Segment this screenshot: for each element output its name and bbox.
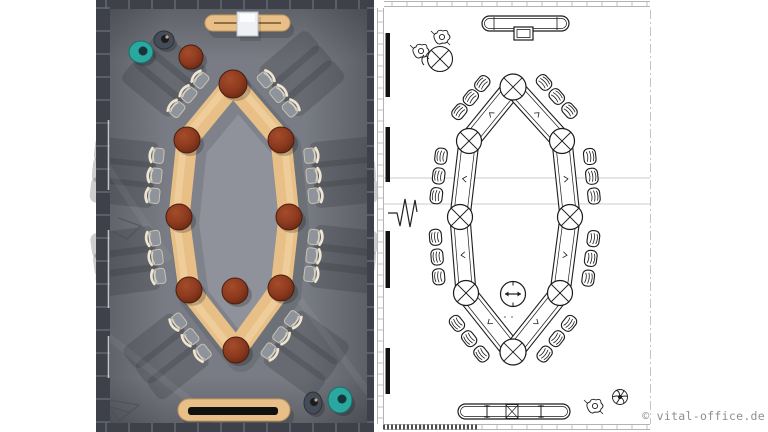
cad-person bbox=[584, 399, 603, 414]
cad-plan-view bbox=[378, 2, 651, 430]
cad-chair bbox=[587, 187, 601, 204]
cad-chair bbox=[547, 329, 566, 349]
cad-person bbox=[613, 390, 628, 405]
junction-table bbox=[268, 275, 294, 301]
cad-side-table bbox=[422, 47, 453, 72]
junction-table bbox=[223, 337, 249, 363]
junction-table bbox=[166, 204, 192, 230]
cad-chair bbox=[547, 87, 567, 107]
wall-right bbox=[367, 0, 374, 432]
cad-chair bbox=[459, 329, 478, 349]
reference-dot bbox=[511, 316, 513, 318]
cad-chair bbox=[581, 269, 595, 286]
cad-chair bbox=[583, 148, 597, 165]
cad-junction-table bbox=[454, 281, 479, 306]
cad-junction-table bbox=[500, 339, 526, 365]
cad-junction-table bbox=[558, 205, 583, 230]
cad-junction-table bbox=[448, 205, 473, 230]
cad-chair bbox=[447, 313, 466, 333]
cad-junction-table bbox=[548, 281, 573, 306]
side-round-table bbox=[179, 45, 203, 69]
cad-chair bbox=[429, 187, 443, 204]
wall-top bbox=[96, 0, 374, 9]
wall-bar bbox=[386, 348, 391, 394]
cad-center-table bbox=[501, 282, 526, 307]
cad-chair bbox=[586, 230, 600, 247]
cad-junction-table bbox=[550, 129, 575, 154]
screenshot-root: © vital-office.de bbox=[0, 0, 768, 432]
cad-chair bbox=[584, 250, 598, 267]
junction-table bbox=[219, 70, 247, 98]
cad-chair bbox=[432, 268, 445, 285]
center-round-table bbox=[222, 278, 248, 304]
wall-bottom bbox=[96, 423, 374, 432]
cad-chair bbox=[472, 344, 491, 364]
wall-bar bbox=[386, 33, 391, 97]
junction-table bbox=[176, 277, 202, 303]
floorplan-scene bbox=[0, 0, 768, 432]
cad-chair bbox=[560, 101, 580, 121]
sideboard-slot bbox=[188, 407, 278, 415]
render-3d-view bbox=[89, 0, 379, 432]
break-line-symbol bbox=[388, 199, 417, 227]
cad-person bbox=[431, 30, 450, 45]
cad-junction-table bbox=[457, 129, 482, 154]
junction-table bbox=[276, 204, 302, 230]
cad-chair bbox=[534, 73, 554, 93]
cad-chair bbox=[430, 249, 443, 266]
junction-table bbox=[174, 127, 200, 153]
wall-bar bbox=[386, 127, 391, 182]
cad-chair bbox=[434, 148, 448, 165]
wall-bar bbox=[386, 231, 391, 288]
cad-junction-table bbox=[500, 74, 526, 100]
cad-chair bbox=[585, 168, 599, 185]
reference-dot bbox=[504, 316, 506, 318]
cad-chair bbox=[432, 167, 446, 184]
watermark-copyright: © vital-office.de bbox=[642, 409, 765, 423]
cad-chair bbox=[559, 313, 578, 333]
cad-chair bbox=[535, 344, 554, 364]
cad-chair bbox=[429, 229, 442, 246]
cad-person bbox=[410, 44, 429, 59]
junction-table bbox=[268, 127, 294, 153]
